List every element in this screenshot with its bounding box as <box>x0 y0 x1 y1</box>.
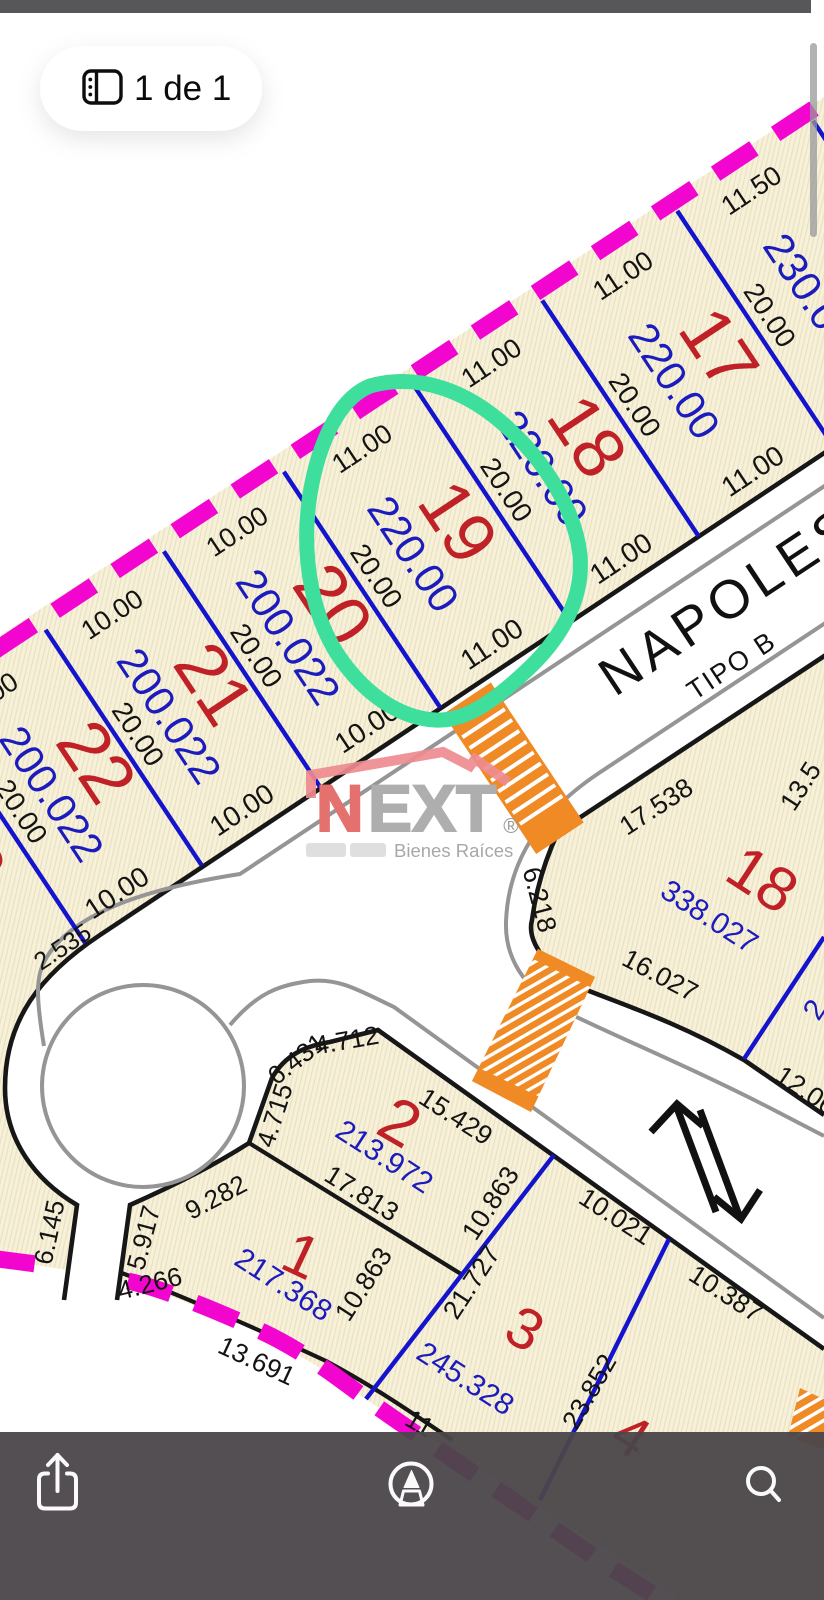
svg-text:1 de 1: 1 de 1 <box>134 69 231 108</box>
svg-text:®: ® <box>503 815 519 838</box>
svg-text:N: N <box>316 771 364 845</box>
svg-text:Bienes Raíces: Bienes Raíces <box>394 840 513 861</box>
svg-text:EXT: EXT <box>368 771 496 845</box>
